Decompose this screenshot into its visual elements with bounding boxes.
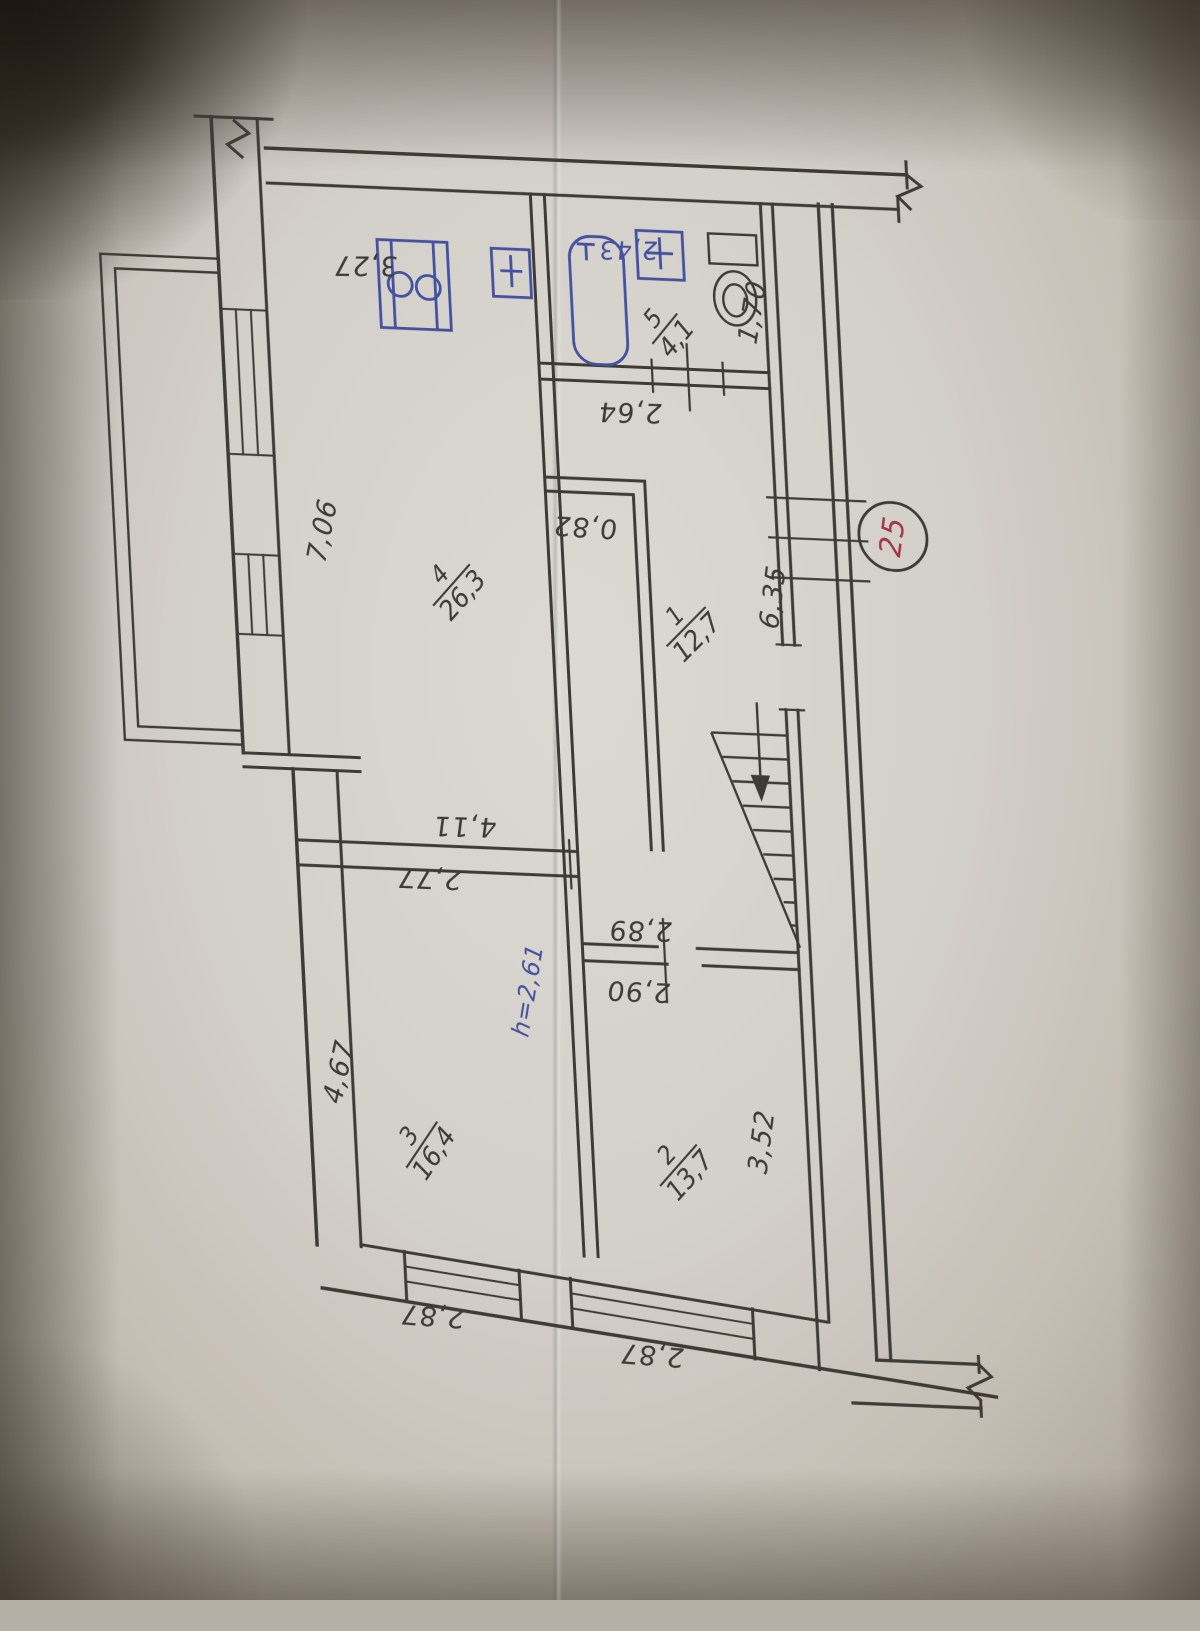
dim-hall-wall-a: 2,89: [607, 914, 673, 947]
dim-room4-bottom-b: 2,77: [396, 861, 462, 895]
floor-plan-drawing: 3,27 2,43 2,64 1,70 7,06 0,82 6,35 4,11 …: [0, 0, 1200, 1627]
stairs-down-arrow-icon: [752, 776, 769, 799]
kitchen-sink-symbol: [491, 248, 531, 298]
wall-break-icon-top-right: [897, 174, 923, 209]
dim-window-left: 2,87: [400, 1298, 465, 1334]
dim-bath-blue: 2,43: [597, 235, 659, 264]
floor-plan-photo: { "plan": { "apartment_number": "25", "c…: [0, 0, 1200, 1600]
dim-window-right: 2,87: [620, 1337, 685, 1373]
dim-closet-width: 0,82: [552, 509, 617, 544]
wall-break-icon-top-left: [226, 120, 250, 157]
dim-bath-door-wall: 2,64: [597, 395, 663, 428]
dim-room4-bottom-a: 4,11: [431, 810, 497, 843]
dim-top-wall: 3,27: [332, 249, 399, 280]
walls: [93, 112, 997, 1417]
entrance-door-opening: [777, 644, 804, 710]
dim-hall-wall-b: 2,90: [606, 974, 672, 1008]
bathroom-door-ticks: [651, 343, 725, 412]
apartment-number: 25: [873, 513, 913, 560]
window-symbol-bottom-left: [405, 1266, 520, 1300]
